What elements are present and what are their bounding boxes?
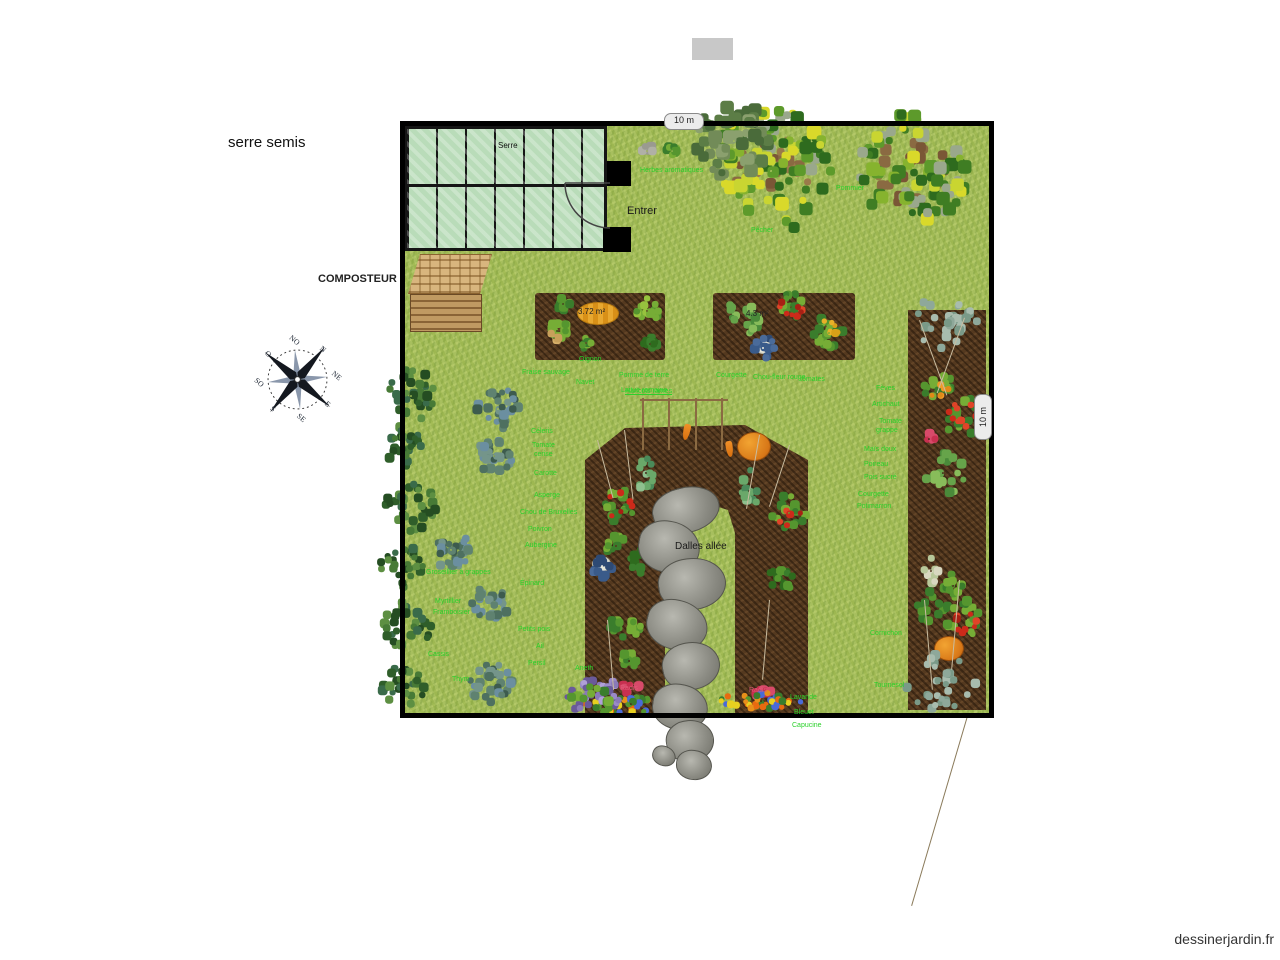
plant-label: Framboisier [433,609,470,617]
plant-label: Cornichon [870,630,902,638]
plant-label: Tomate [879,418,902,426]
compass-s: S [268,404,277,414]
compass-so: SO [253,376,267,389]
compass-e: E [323,399,333,409]
plant-label: grappe [876,427,898,435]
plant-label: Fraise sauvage [522,369,570,377]
flower-border[interactable] [760,700,762,702]
vine[interactable] [410,395,412,397]
plant-label: Aneth [575,665,593,673]
shrub[interactable] [488,604,490,606]
vine[interactable] [410,505,412,507]
plant-label: Myrtillier [435,598,461,606]
compass-se: SE [295,411,308,424]
plant-label: Épinard [520,580,544,588]
plant-label: Radis [749,687,767,695]
plant-label: Pomme de terre [619,372,669,380]
stray-line [911,716,968,906]
composter[interactable] [408,254,494,332]
tomato-fruit[interactable] [966,620,968,622]
basil[interactable] [628,660,630,662]
pepper-plant[interactable] [625,625,627,627]
shrub[interactable] [450,549,452,551]
compass-rose[interactable]: N NE E SE S SO O NO [250,332,345,427]
plant-label: tomates [800,376,825,384]
radish[interactable] [928,438,930,440]
plant-label: Cassis [428,651,449,659]
pumpkin[interactable] [934,636,964,661]
vegetable-bed-2[interactable] [713,293,855,360]
compass-ne: NE [330,369,344,383]
plant-label: Chou-fleur rouge [753,374,806,382]
plant-label: Céleris [531,428,553,436]
plant-label: Pois sucré [864,474,897,482]
watermark: dessinerjardin.fr [1150,931,1274,947]
dimension-right-text: 10 m [975,395,991,439]
plant-label: Petits pois [518,626,550,634]
plant-label: Tomate [532,442,555,450]
dimension-right: 10 m [974,394,992,440]
plant-label: Thym [452,676,470,684]
lettuce[interactable] [646,310,648,312]
squash-plant[interactable] [741,316,743,318]
path-label: Dalles allée [675,541,727,552]
entrance-label: Entrer [627,205,657,217]
garden-plan-canvas: serre semis COMPOSTEUR N NE E SE [0,0,1280,960]
tomato-fruit[interactable] [828,332,830,334]
plant-label: Persil [528,660,546,668]
leek-tower[interactable] [645,472,647,474]
plant-label: Potimarron [857,503,891,511]
trellis-pole [695,398,697,450]
compass-no: NO [287,333,302,347]
plant-label: Oignon [579,356,602,364]
plant-label: Fèves [876,385,895,393]
grass-tuft[interactable] [671,150,673,152]
kale[interactable] [640,560,642,562]
kale[interactable] [782,575,784,577]
squash-plant[interactable] [942,472,944,474]
tree-trunk[interactable] [770,172,772,174]
plant-label: Carotte [534,470,557,478]
tomato-fruit[interactable] [962,415,964,417]
lavender[interactable] [593,695,595,697]
celery[interactable] [615,545,617,547]
lavender-base[interactable] [593,700,595,702]
vine[interactable] [402,445,404,447]
broccoli[interactable] [649,343,651,345]
shrub[interactable] [493,455,495,457]
page-title: serre semis [228,134,306,151]
dimension-top: 10 m [664,113,704,130]
tree-pommier[interactable] [770,170,772,172]
pepper-plant[interactable] [952,585,954,587]
shrub[interactable] [490,682,492,684]
plant-label: Tournesol [874,682,904,690]
gray-box [692,38,733,60]
potato-plant[interactable] [556,330,558,332]
plant-label: Maïs doux [864,446,896,454]
plant-label: Poivron [528,526,552,534]
trellis-pole [721,398,723,450]
tree-trunk[interactable] [912,169,914,171]
plant-label: Radis [620,685,638,693]
cucumber[interactable] [932,605,934,607]
trellis-pole [668,398,670,450]
potatoes[interactable] [553,337,555,339]
greenhouse-label: Serre [498,141,518,150]
bush-dark[interactable] [733,140,735,142]
carrot-top[interactable] [585,342,587,344]
tomato-fruit[interactable] [618,505,620,507]
plant-label: Bleuet [794,709,814,717]
bed1-area-label: 3.72 m² [578,307,605,316]
plant-label: Groseillier à grappes [426,569,491,577]
plant-label: Haricots rames [625,388,672,396]
plant-label: Courgette [858,491,889,499]
plant-label: Courgette [716,372,747,380]
composter-label: COMPOSTEUR [318,273,397,285]
seedling[interactable] [562,303,564,305]
plant-label: Aubergine [525,542,557,550]
plant-label: Pêcher [751,227,773,235]
rock[interactable] [646,150,648,152]
cauliflower-leaves[interactable] [762,347,764,349]
composter-top [408,254,492,294]
plant-label: Ail [536,643,544,651]
plant-label: Poireau [864,461,888,469]
bed2-area-label: 4.3 m² [746,309,769,318]
plant-label: Herbes aromatiques [640,167,703,175]
tree-2[interactable] [912,167,914,169]
vine[interactable] [402,685,404,687]
vine[interactable] [400,565,402,567]
composter-front [410,294,482,332]
plant-label: Artichaut [872,401,900,409]
plant-label: Capucine [792,722,822,730]
artichoke[interactable] [940,682,942,684]
shrub[interactable] [497,408,499,410]
trellis-pole [642,398,644,450]
plant-label: Lavande [790,694,817,702]
trellis-bar [640,399,728,401]
plant-label: cerise [534,451,553,459]
cauliflower[interactable] [592,556,611,572]
pepper-fruit[interactable] [790,306,792,308]
plant-label: Navet [576,379,594,387]
plant-label: Pommier [836,185,864,193]
artichoke[interactable] [942,322,944,324]
tomato-fruit[interactable] [788,512,790,514]
cauliflower-leaves[interactable] [601,565,603,567]
flower-border[interactable] [630,703,632,705]
vine[interactable] [408,625,410,627]
leek[interactable] [930,570,932,572]
plant-label: Chou de Bruxelles [520,509,577,517]
plant-label: Asperge [534,492,560,500]
